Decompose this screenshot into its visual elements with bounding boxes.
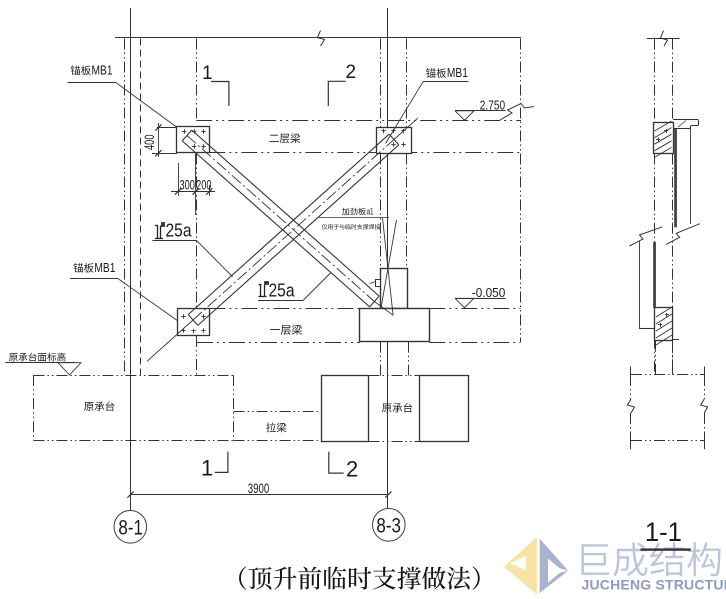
svg-text:-0.050: -0.050: [472, 286, 506, 300]
svg-text:400: 400: [142, 135, 157, 151]
svg-text:MB1: MB1: [94, 261, 115, 275]
svg-text:1: 1: [201, 455, 213, 480]
svg-text:300: 300: [180, 177, 195, 192]
svg-text:MB1: MB1: [92, 63, 113, 77]
svg-text:2: 2: [346, 62, 357, 83]
svg-text:25a: 25a: [166, 221, 193, 241]
svg-text:1: 1: [202, 63, 213, 84]
svg-text:1-1: 1-1: [645, 517, 682, 547]
svg-text:8-1: 8-1: [118, 515, 142, 539]
svg-text:200: 200: [196, 177, 211, 192]
svg-text:2.750: 2.750: [480, 98, 505, 112]
svg-text:8-3: 8-3: [376, 513, 401, 537]
svg-text:2: 2: [346, 456, 358, 481]
svg-text:JUCHENG STRUCTURE: JUCHENG STRUCTURE: [582, 577, 726, 593]
svg-text:25a: 25a: [269, 281, 296, 301]
svg-text:3900: 3900: [248, 480, 270, 496]
svg-text:a1: a1: [367, 207, 374, 217]
svg-text:MB1: MB1: [447, 66, 468, 80]
